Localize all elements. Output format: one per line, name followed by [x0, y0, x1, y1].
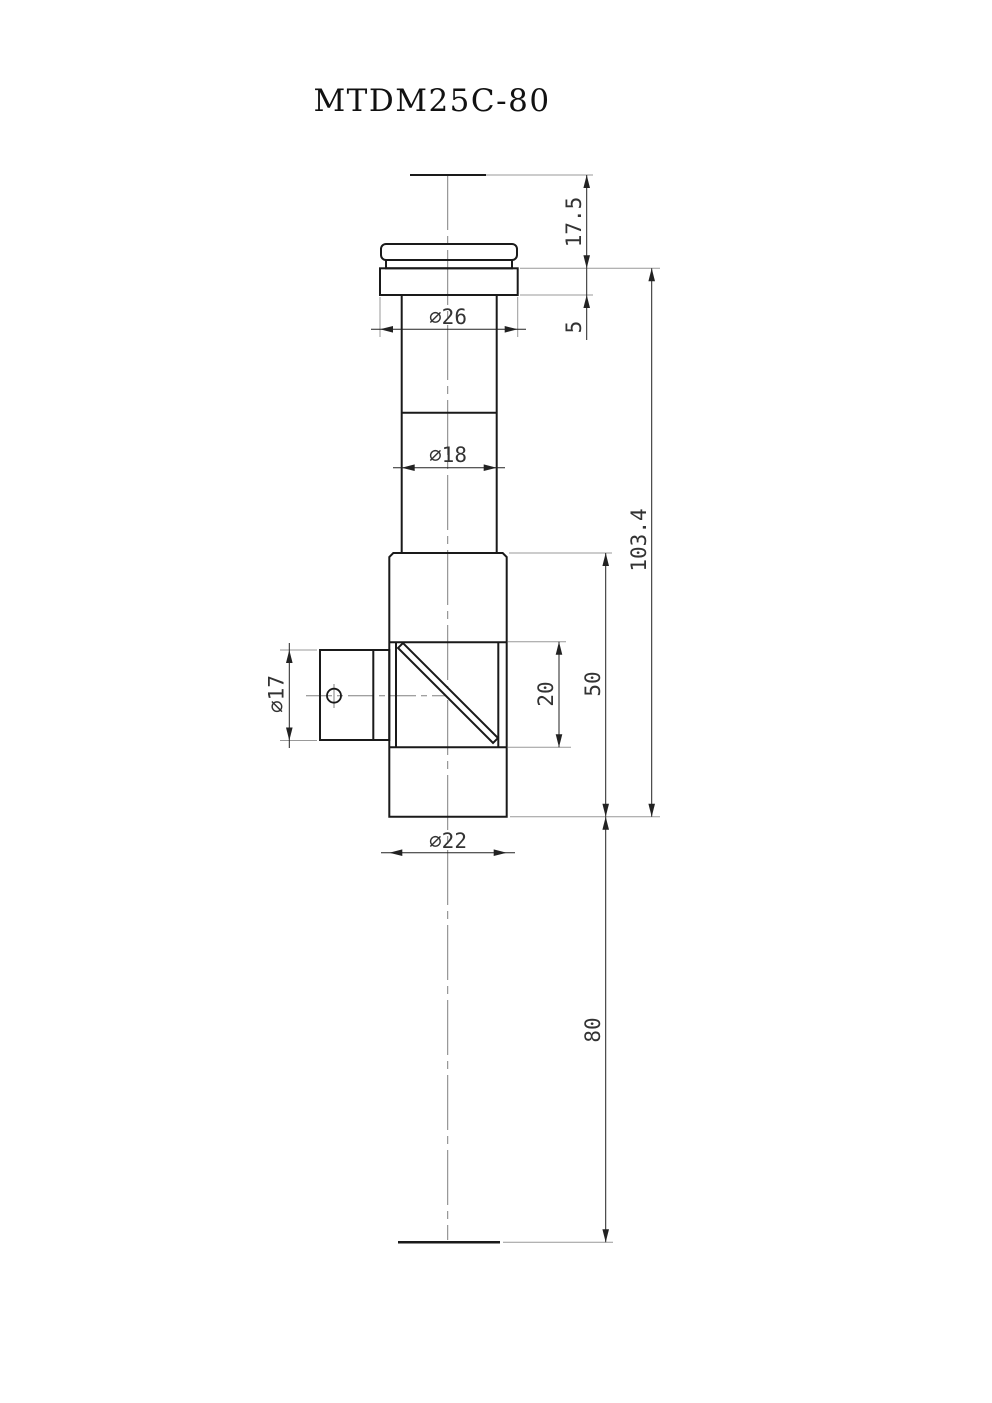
- part-outline: [320, 244, 518, 817]
- arrow-up: [583, 295, 590, 308]
- dim-body-diameter: ∅22: [381, 829, 515, 856]
- drawing-sheet: MTDM25C-80: [0, 0, 992, 1403]
- dim-cube-aperture: 20: [534, 642, 562, 748]
- arrow-bottom: [602, 804, 609, 817]
- dim-label-flange-thickness: 5: [562, 321, 586, 334]
- arrow-top: [583, 175, 590, 188]
- arrow-bottom: [556, 734, 563, 747]
- arrow-top: [286, 650, 293, 663]
- dim-overall-length: 103.4: [627, 268, 655, 816]
- dim-label-flange-diameter: ∅26: [429, 305, 467, 329]
- arrow-top: [602, 553, 609, 566]
- dim-shaft-diameter: ∅18: [393, 443, 505, 471]
- dim-label-side-port-diameter: ∅17: [265, 675, 289, 713]
- arrow-bottom: [286, 728, 293, 741]
- arrow-top: [648, 268, 655, 281]
- arrow-right: [494, 849, 507, 856]
- arrow-bottom: [583, 255, 590, 268]
- arrow-bottom: [648, 804, 655, 817]
- dim-label-body-length: 50: [581, 671, 605, 696]
- arrow-top: [556, 642, 563, 655]
- dim-label-shaft-diameter: ∅18: [429, 443, 467, 467]
- technical-drawing: MTDM25C-80: [0, 0, 992, 1403]
- dim-label-body-diameter: ∅22: [429, 829, 467, 853]
- reference-lines: [398, 175, 613, 1242]
- side-port: [320, 650, 389, 740]
- arrow-right: [505, 326, 518, 333]
- dim-working-distance: 80: [581, 817, 609, 1243]
- dim-label-working-distance: 80: [581, 1017, 605, 1042]
- dim-flange-thickness: 5: [562, 268, 590, 340]
- top-cap: [381, 244, 517, 260]
- arrow-right: [484, 464, 497, 471]
- dim-top-offset: 17.5: [562, 175, 590, 268]
- cap-neck-band: [386, 260, 512, 268]
- dim-label-cube-aperture: 20: [534, 681, 558, 706]
- arrow-bottom: [602, 1229, 609, 1242]
- dim-label-overall-length: 103.4: [627, 508, 651, 571]
- dim-label-top-offset: 17.5: [562, 197, 586, 248]
- dim-side-port-diameter: ∅17: [265, 643, 293, 748]
- arrow-top: [602, 817, 609, 830]
- drawing-title: MTDM25C-80: [313, 83, 550, 119]
- dim-body-length: 50: [581, 553, 609, 817]
- extension-lines: [280, 268, 660, 816]
- arrow-left: [380, 326, 393, 333]
- centerlines: [306, 175, 450, 1240]
- arrow-left: [389, 849, 402, 856]
- dim-flange-diameter: ∅26: [371, 305, 526, 333]
- flange-block: [380, 268, 518, 295]
- arrow-left: [402, 464, 415, 471]
